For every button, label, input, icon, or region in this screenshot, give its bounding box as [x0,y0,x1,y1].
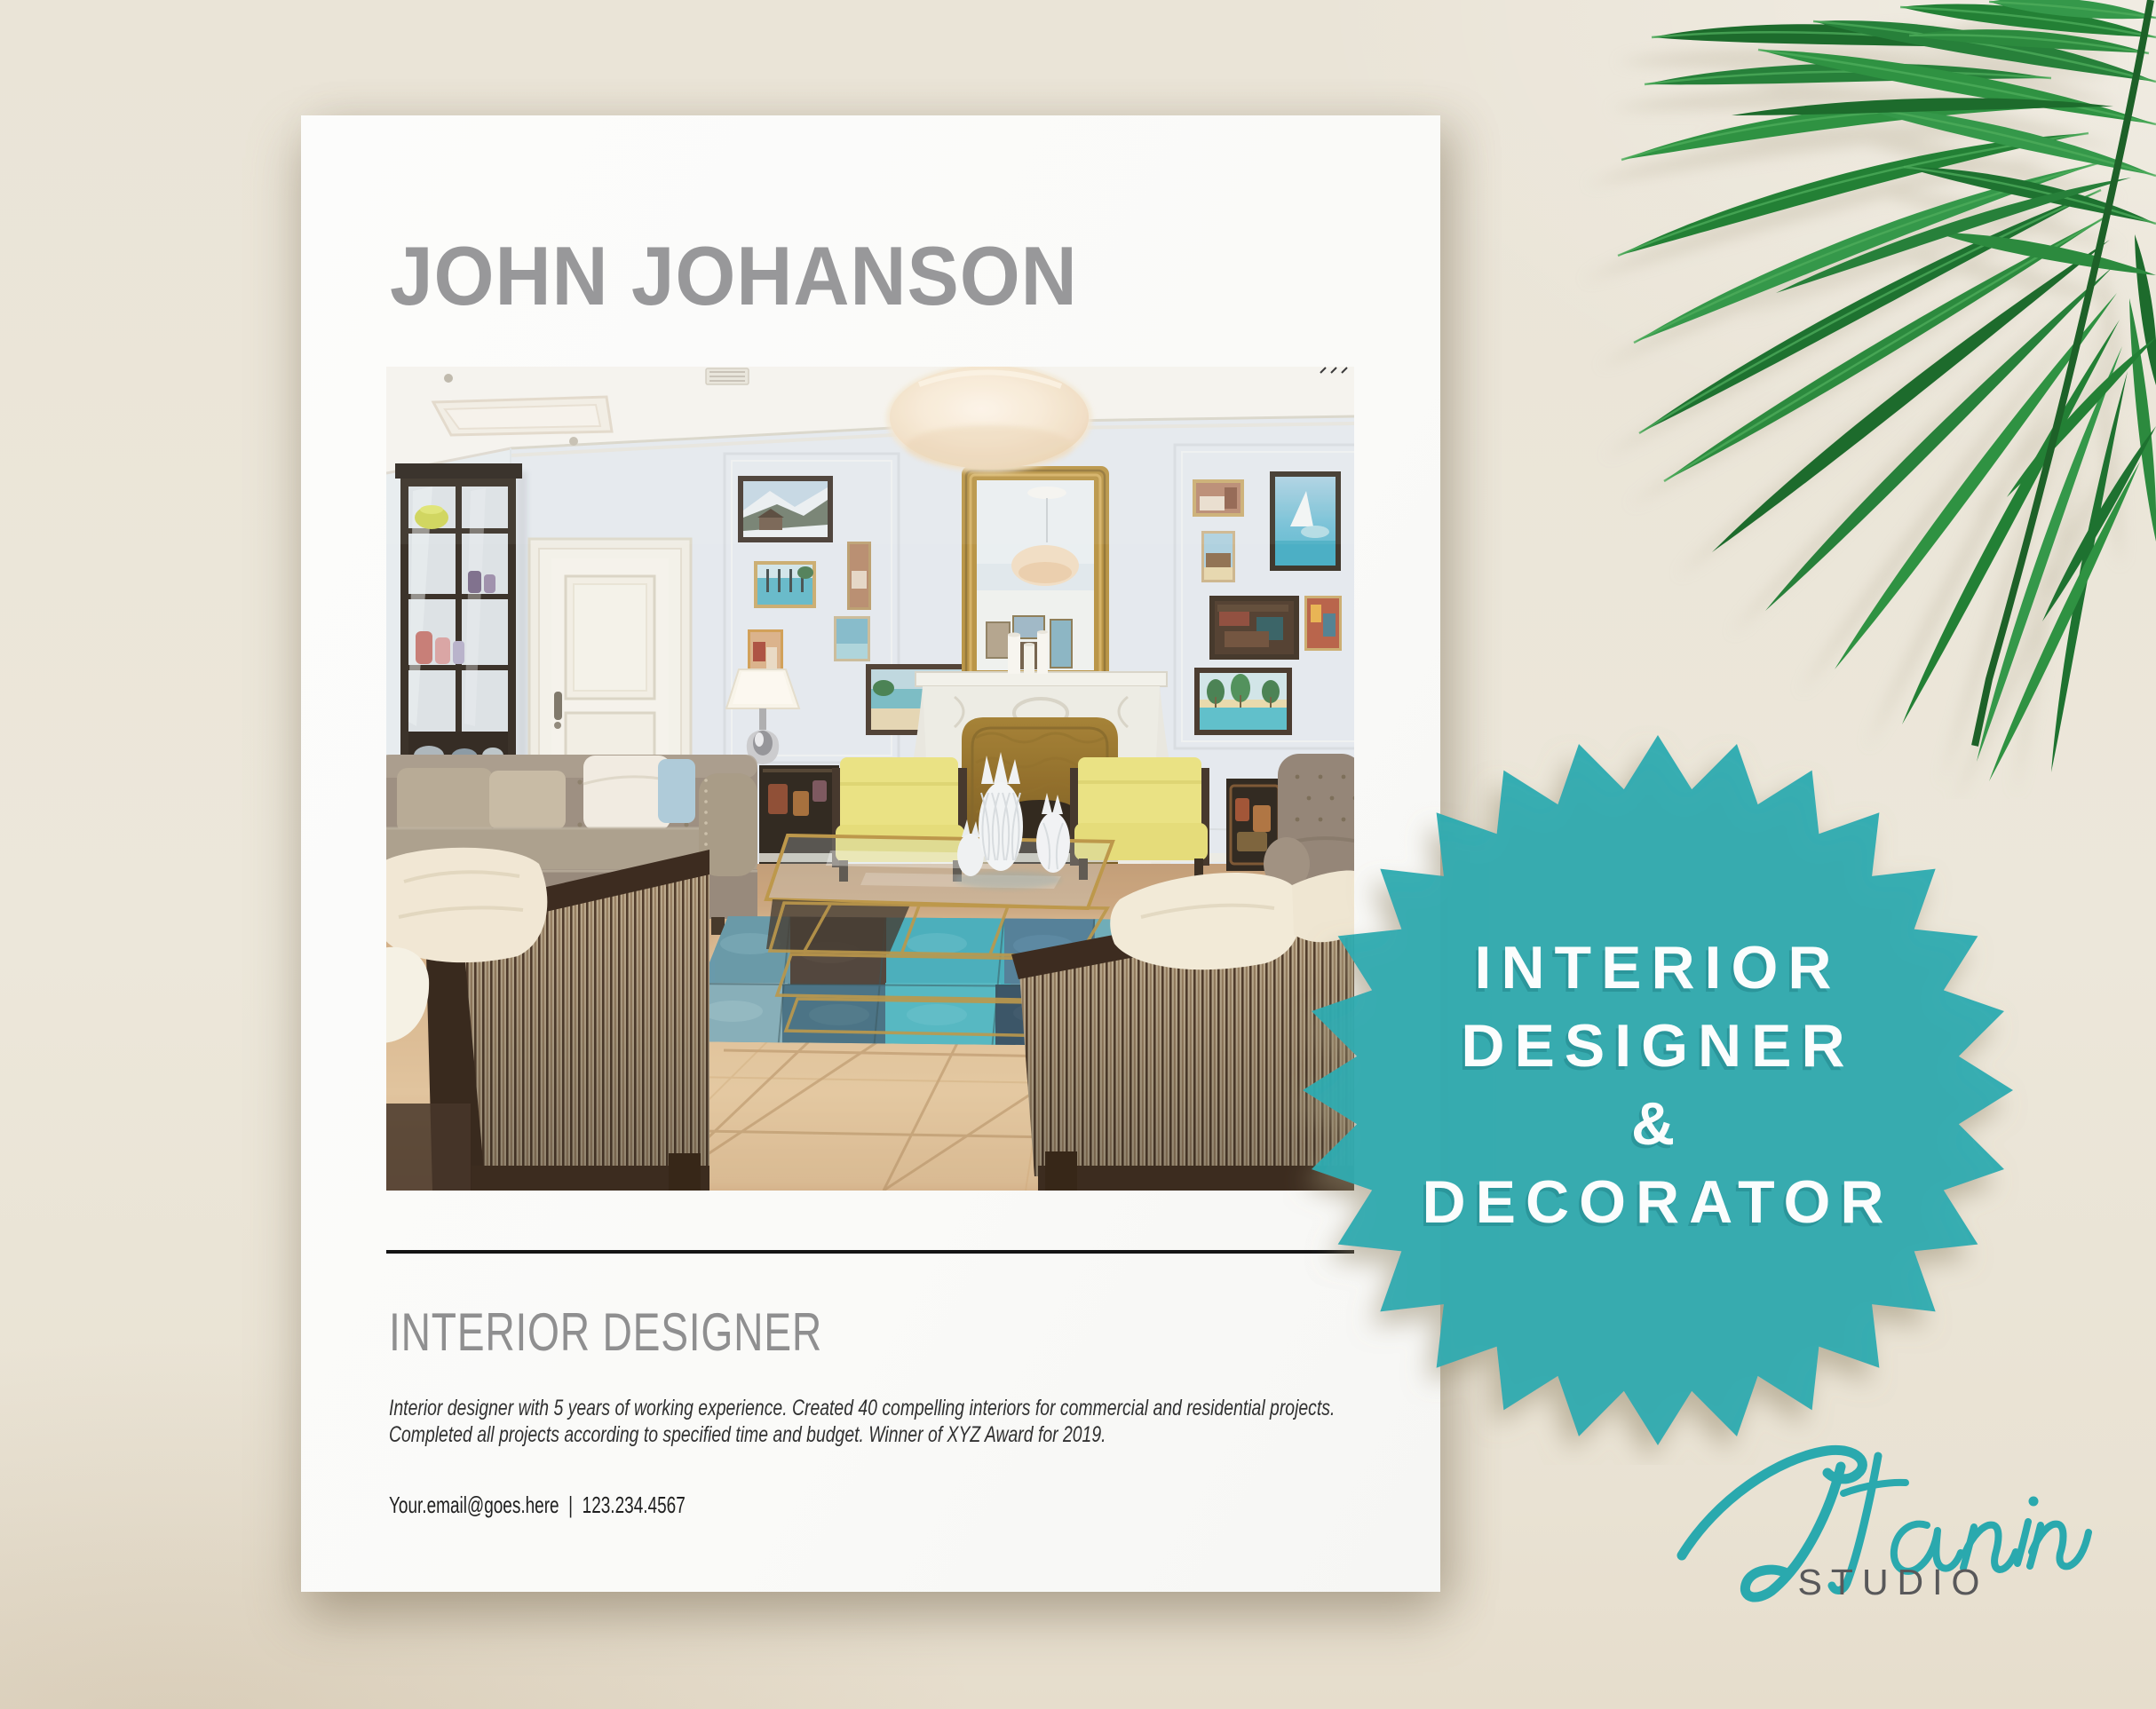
svg-text:DECORATOR: DECORATOR [1423,1168,1894,1236]
svg-text:STUDIO: STUDIO [1798,1562,1989,1602]
svg-text:DESIGNER: DESIGNER [1461,1012,1854,1080]
svg-text:&: & [1631,1090,1684,1158]
svg-text:INTERIOR: INTERIOR [1475,934,1842,1001]
